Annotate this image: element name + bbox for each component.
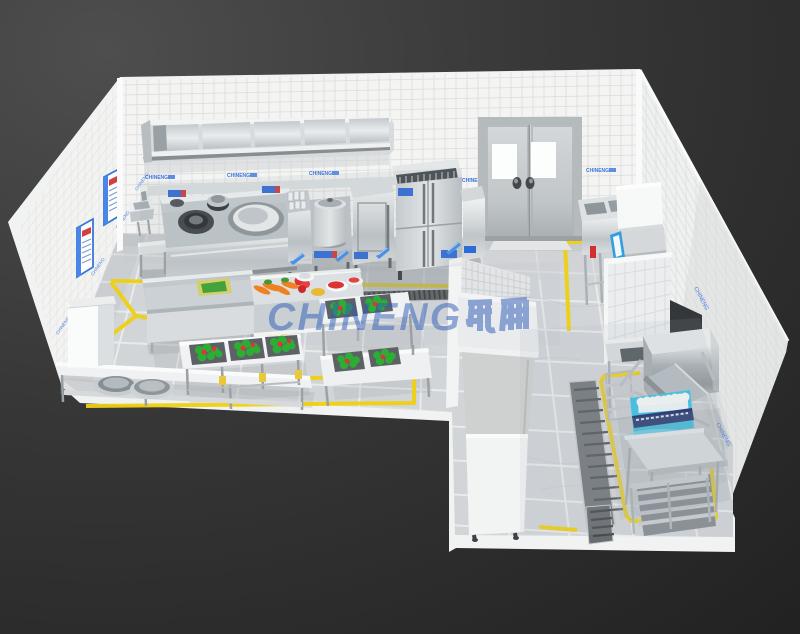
svg-text:CHINENG: CHINENG — [145, 175, 168, 181]
svg-text:CHINENG: CHINENG — [586, 168, 609, 174]
svg-text:CHINENG: CHINENG — [267, 296, 462, 339]
svg-text:CHINE: CHINE — [462, 178, 478, 184]
